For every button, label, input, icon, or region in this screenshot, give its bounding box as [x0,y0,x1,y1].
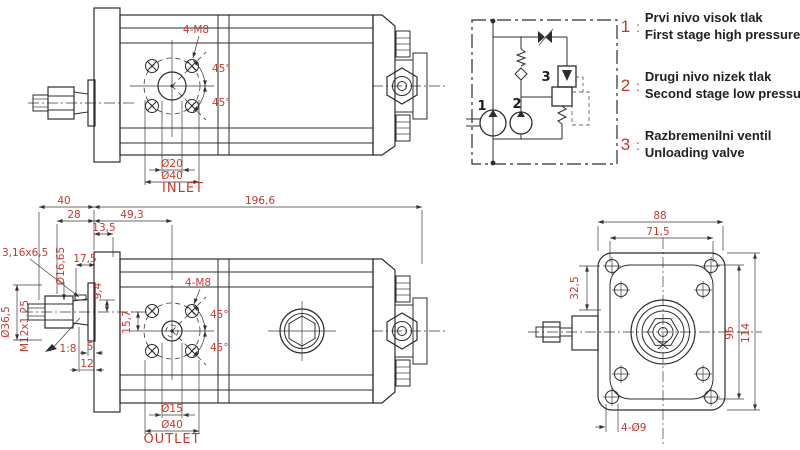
legend-item-3: 3 : Razbremenilni ventil Unloading valve [620,128,798,161]
dim-96: 96 [724,326,736,340]
dim-71-5: 71,5 [646,226,669,238]
schematic-boundary [472,20,617,164]
front-view: 88 71,5 32,5 96 114 4-Ø9 [528,210,762,446]
legend-number-2: 2 [620,77,631,94]
dim-5: 5 [87,341,94,353]
dim-196-6: 196,6 [245,195,275,207]
mounting-flange [94,8,120,162]
schematic-label-3: 3 [541,70,550,85]
hydraulic-schematic: 1 2 3 [466,19,617,166]
legend-text-en-2: Second stage low pressure [645,86,800,103]
legend-text-en-1: First stage high pressure [645,27,800,44]
dim-40: 40 [57,195,70,207]
legend-sep-3: : [636,137,640,153]
front-flange-plate [598,253,725,410]
schematic-label-2: 2 [512,97,521,112]
end-cap [373,15,395,155]
dim-15-7: 15,7 [121,310,133,333]
legend-item-1: 1 : Prvi nivo visok tlak First stage hig… [620,10,798,43]
dim-88: 88 [653,210,666,222]
dim-12: 12 [80,358,93,370]
schematic-legend: 1 : Prvi nivo visok tlak First stage hig… [620,10,798,187]
schematic-label-1: 1 [477,99,486,114]
dim-49-3: 49,3 [120,209,143,221]
angle-label-bottom-bottom: 45° [210,342,229,354]
outlet-label: OUTLET [143,432,200,447]
bottom-side-view: 40 196,6 28 49,3 13,5 3,16x6,5 [0,195,448,447]
dim-4-d9: 4-Ø9 [621,422,646,434]
angle-label-bottom: 45° [212,97,231,109]
legend-number-1: 1 [620,18,631,35]
top-side-view: 45° 45° 4-M8 Ø20 Ø40 INLET [28,8,448,196]
technical-drawing-page: 45° 45° 4-M8 Ø20 Ø40 INLET [0,0,800,450]
angle-label-top-bottom: 45° [210,309,229,321]
inlet-label: INLET [162,181,204,196]
key-callout: 3,16x6,5 [2,247,48,259]
dim-m12: M12x1,25 [19,300,31,352]
dim-32-5: 32,5 [569,276,581,299]
legend-item-2: 2 : Drugi nivo nizek tlak Second stage l… [620,69,798,102]
dim-d20: Ø20 [161,158,183,170]
dim-114: 114 [740,323,752,343]
legend-sep-1: : [636,19,640,35]
front-corner-holes [603,257,720,406]
dim-13-5: 13,5 [92,222,115,234]
dim-16-65: Ø16,65 [55,247,67,285]
dim-36-5: Ø36,5 [0,306,12,338]
dim-9-4: 9,4 [92,282,104,299]
mounting-flange-bottom [94,252,120,412]
dim-17-5: 17,5 [73,253,96,265]
second-stage-port [268,301,336,361]
legend-text-sl-3: Razbremenilni ventil [645,128,771,145]
legend-sep-2: : [636,78,640,94]
dim-d15: Ø15 [161,403,183,415]
legend-text-sl-2: Drugi nivo nizek tlak [645,69,800,86]
bolt-callout-bottom: 4-M8 [185,277,211,289]
angle-label-top: 45° [212,63,231,75]
front-valve-fitting [536,316,598,350]
legend-text-en-3: Unloading valve [645,145,771,162]
dim-28: 28 [67,209,80,221]
bolt-callout: 4-M8 [183,24,209,36]
legend-number-3: 3 [620,136,631,153]
legend-text-sl-1: Prvi nivo visok tlak [645,10,800,27]
dim-taper: 1:8 [60,343,77,355]
dim-d40-bottom: Ø40 [161,419,183,431]
